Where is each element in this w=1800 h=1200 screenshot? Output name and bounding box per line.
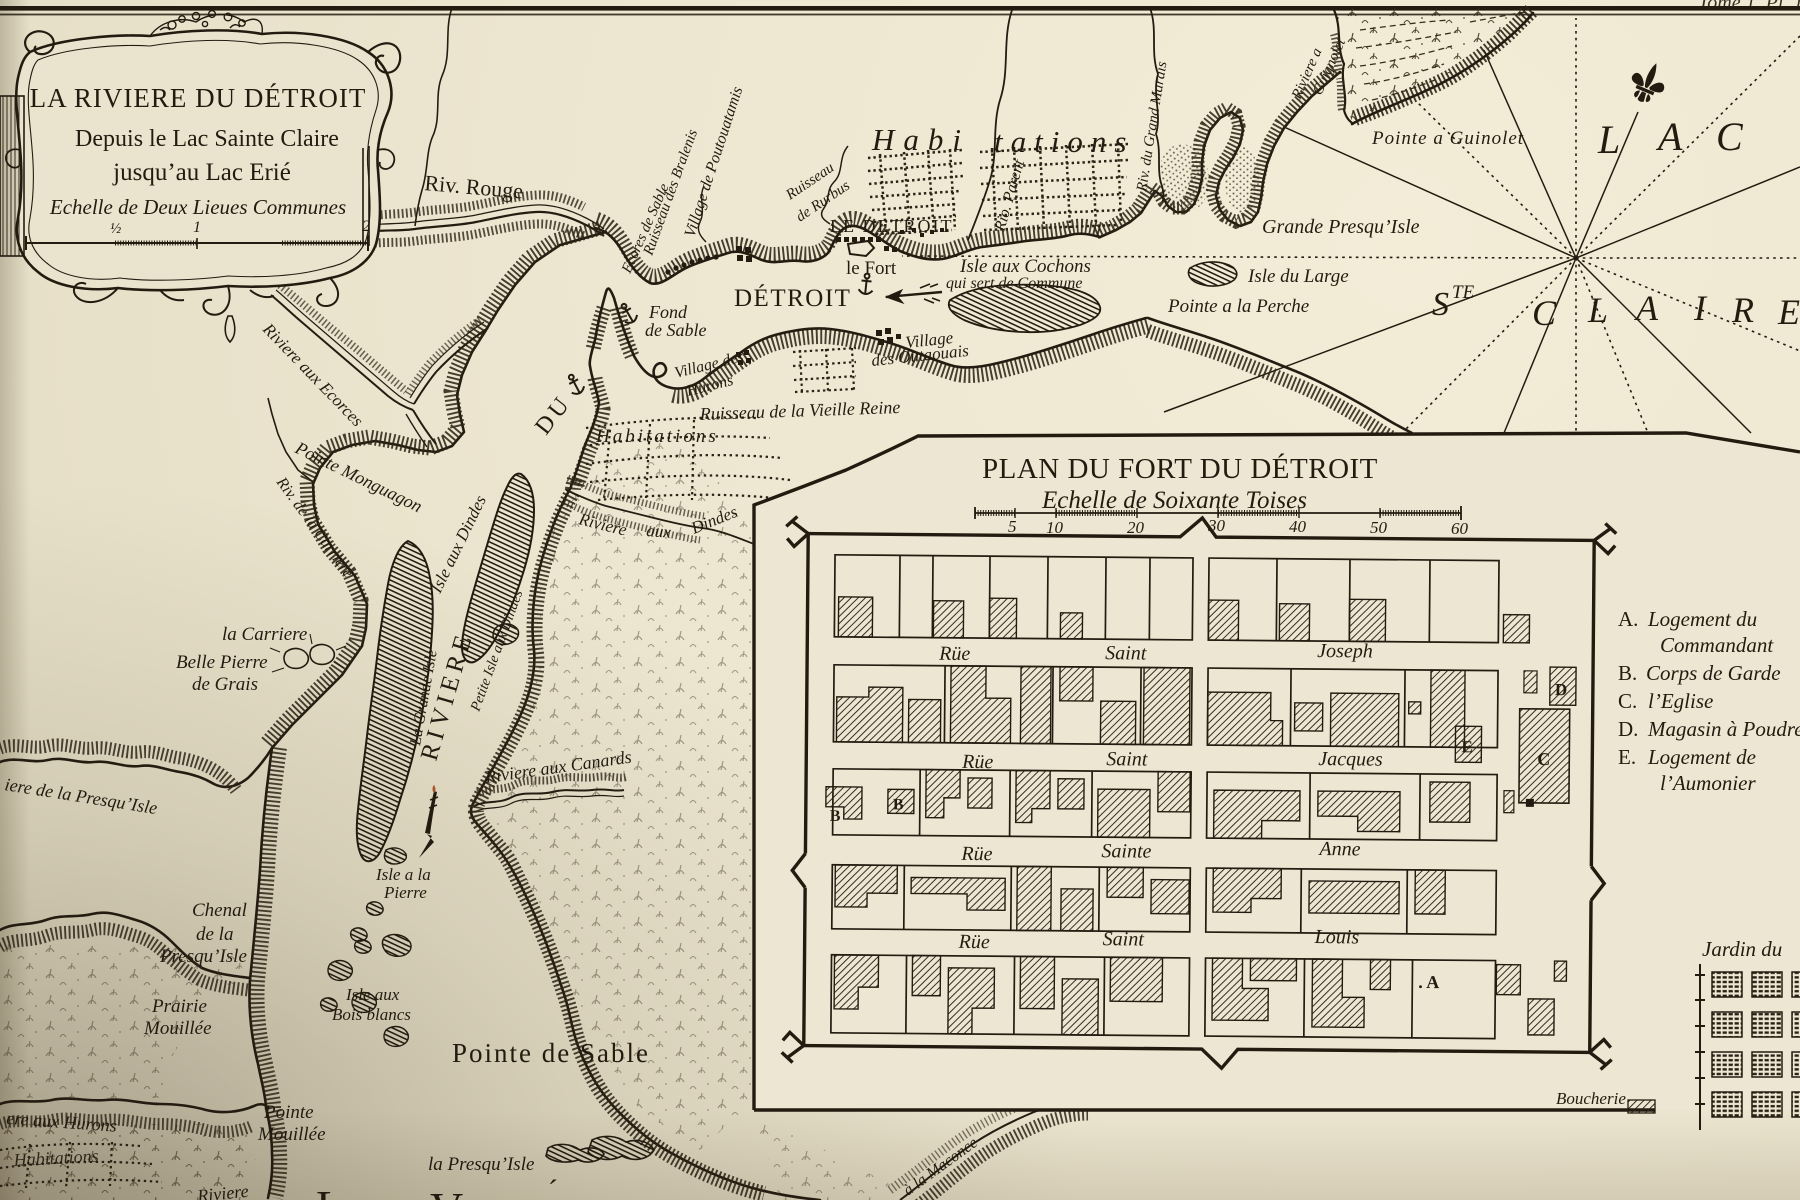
svg-text:50: 50	[1370, 518, 1388, 537]
svg-text:aux: aux	[646, 521, 672, 542]
svg-text:C: C	[1716, 114, 1744, 159]
svg-text:PLAN DU FORT DU DÉTROIT: PLAN DU FORT DU DÉTROIT	[982, 452, 1378, 485]
svg-text:de la: de la	[196, 924, 233, 945]
svg-text:Louis: Louis	[1314, 926, 1360, 948]
svg-text:60: 60	[1451, 519, 1469, 538]
svg-text:Isle aux Cochons: Isle aux Cochons	[959, 256, 1091, 277]
svg-text:L: L	[1597, 117, 1620, 162]
svg-text:Pointe a la Perche: Pointe a la Perche	[1167, 296, 1309, 317]
svg-text:20: 20	[1127, 518, 1145, 537]
svg-text:S: S	[1432, 286, 1449, 323]
svg-text:Habitations: Habitations	[595, 426, 719, 447]
svg-text:Isle aux: Isle aux	[345, 985, 400, 1004]
svg-text:TE: TE	[1452, 282, 1475, 303]
svg-text:Boucherie: Boucherie	[1556, 1089, 1626, 1108]
svg-text:Corps de Garde: Corps de Garde	[1646, 661, 1781, 685]
svg-text:Commandant: Commandant	[1660, 633, 1774, 657]
svg-text:Logement du: Logement du	[1647, 607, 1757, 631]
svg-text:A.: A.	[1618, 607, 1638, 631]
svg-text:´: ´	[548, 1174, 558, 1200]
svg-text:la Carriere: la Carriere	[222, 624, 307, 645]
svg-text:Bois blancs: Bois blancs	[332, 1005, 411, 1024]
svg-text:l’Aumonier: l’Aumonier	[1660, 771, 1756, 795]
svg-text:E.: E.	[1618, 745, 1636, 769]
svg-text:Pointe de Sable: Pointe de Sable	[452, 1038, 650, 1068]
svg-text:Isle a la: Isle a la	[375, 865, 431, 884]
svg-text:Jardin du: Jardin du	[1702, 937, 1782, 961]
svg-text:LA RIVIERE DU DÉTROIT: LA RIVIERE DU DÉTROIT	[30, 83, 367, 113]
svg-text:le Fort: le Fort	[846, 258, 897, 279]
svg-text:tations: tations	[994, 124, 1134, 159]
svg-text:40: 40	[1289, 517, 1307, 536]
svg-text:Pointe: Pointe	[263, 1102, 314, 1123]
svg-text:Sainte: Sainte	[1101, 840, 1151, 862]
svg-text:Saint: Saint	[1106, 748, 1148, 770]
svg-text:Pierre: Pierre	[383, 883, 427, 902]
svg-text:C: C	[1537, 749, 1550, 769]
svg-text:Tome 1. Pl. 1: Tome 1. Pl. 1	[1698, 0, 1800, 14]
svg-text:Rüe: Rüe	[958, 931, 990, 953]
svg-text:Chenal: Chenal	[192, 900, 247, 921]
svg-text:Rüe: Rüe	[960, 843, 992, 865]
svg-text:L: L	[1587, 290, 1608, 330]
svg-text:Saint: Saint	[1105, 642, 1147, 664]
svg-text:Rüe: Rüe	[938, 643, 970, 665]
svg-text:D.: D.	[1618, 717, 1638, 741]
svg-text:C: C	[1532, 293, 1557, 333]
svg-text:B: B	[830, 808, 841, 825]
svg-text:A: A	[1634, 288, 1659, 328]
svg-text:Fond: Fond	[648, 302, 688, 322]
svg-text:Depuis le Lac Sainte Claire: Depuis le Lac Sainte Claire	[75, 126, 339, 152]
svg-text:l’Eglise: l’Eglise	[1648, 689, 1713, 713]
svg-text:D: D	[1555, 680, 1567, 699]
svg-text:Pointe a Guinolet: Pointe a Guinolet	[1371, 128, 1524, 149]
svg-text:1: 1	[193, 219, 201, 236]
svg-text:Anne: Anne	[1317, 838, 1360, 860]
svg-text:qui sert de Commune: qui sert de Commune	[946, 275, 1082, 292]
svg-text:L: L	[316, 1181, 344, 1200]
svg-text:DÉTROIT: DÉTROIT	[734, 284, 851, 312]
svg-text:la Presqu’Isle: la Presqu’Isle	[428, 1154, 534, 1175]
svg-text:de Sable: de Sable	[645, 320, 706, 340]
svg-text:Habi: Habi	[871, 122, 970, 157]
svg-text:V: V	[430, 1183, 463, 1200]
svg-text:LE DETROIT: LE DETROIT	[830, 216, 953, 236]
svg-text:E: E	[1461, 737, 1473, 756]
svg-text:Echelle de Soixante Toises: Echelle de Soixante Toises	[1041, 487, 1307, 514]
svg-text:½: ½	[110, 221, 121, 237]
svg-text:C.: C.	[1618, 689, 1637, 713]
svg-text:2: 2	[362, 218, 370, 235]
svg-text:Grande Presqu’Isle: Grande Presqu’Isle	[1262, 216, 1420, 238]
svg-text:de Grais: de Grais	[192, 674, 258, 695]
svg-text:Joseph: Joseph	[1317, 640, 1373, 662]
svg-text:. A: . A	[1418, 972, 1439, 992]
svg-text:Saint: Saint	[1103, 928, 1145, 950]
svg-text:Belle Pierre: Belle Pierre	[176, 652, 268, 673]
svg-text:E: E	[1777, 292, 1800, 332]
svg-text:I: I	[1693, 288, 1708, 328]
svg-text:Jacques: Jacques	[1318, 748, 1383, 771]
svg-text:jusqu’au Lac Erié: jusqu’au Lac Erié	[112, 159, 291, 186]
svg-text:Isle du Large: Isle du Large	[1247, 266, 1349, 287]
svg-text:B.: B.	[1618, 661, 1637, 685]
svg-text:B: B	[893, 796, 904, 813]
svg-text:R: R	[1731, 290, 1754, 330]
svg-text:Magasin à Poudre: Magasin à Poudre	[1647, 717, 1800, 741]
svg-text:5: 5	[1008, 517, 1017, 536]
svg-text:Echelle de Deux Lieues Commune: Echelle de Deux Lieues Communes	[49, 195, 346, 219]
svg-text:Mouillée: Mouillée	[257, 1124, 326, 1145]
svg-text:Logement de: Logement de	[1647, 745, 1756, 769]
svg-text:A: A	[1655, 114, 1683, 159]
